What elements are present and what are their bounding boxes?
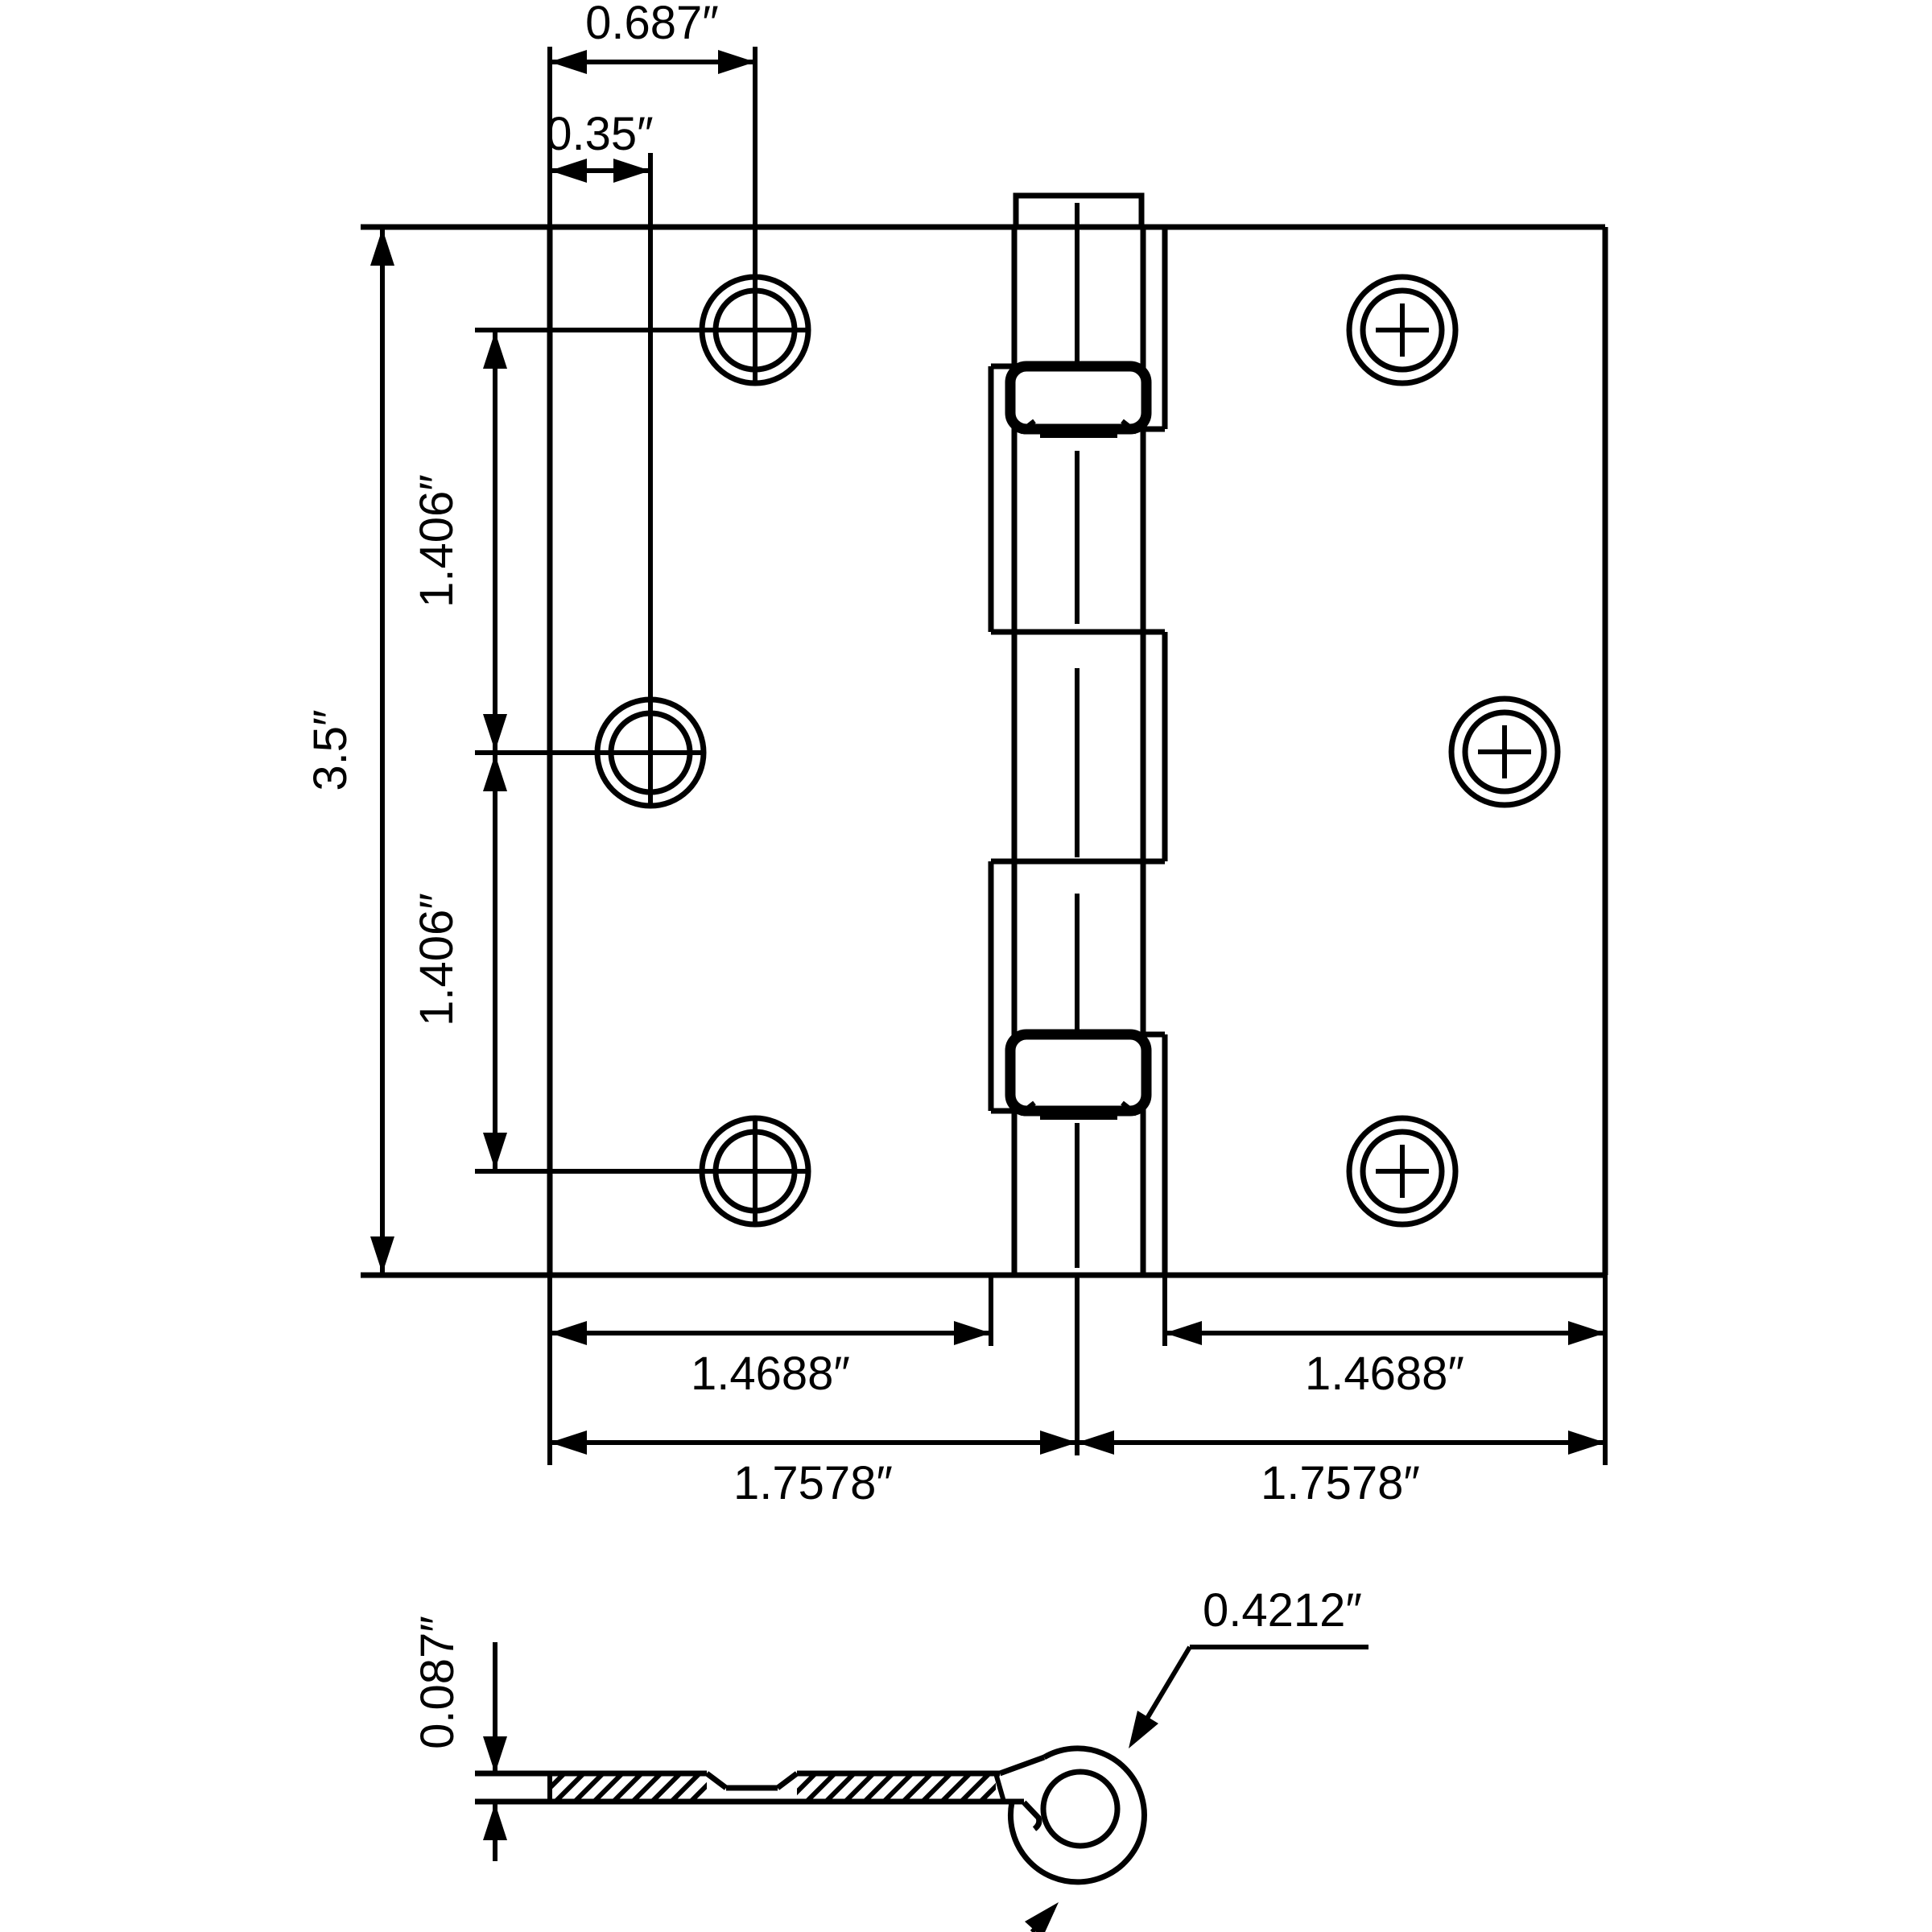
arrowhead-left	[550, 159, 587, 183]
arrowhead-left	[550, 1321, 587, 1345]
arrowhead-top	[483, 332, 507, 369]
dim-label-barrel-diameter: 0.4212″	[1203, 1584, 1362, 1637]
dim-label-hole-spacing-upper: 1.406″	[411, 474, 463, 608]
dim-right-half-width: 1.7578″	[1077, 1430, 1605, 1509]
screw-hole-right-bottom	[1349, 1118, 1455, 1224]
neck-top-line	[1000, 1757, 1044, 1773]
dim-hinge-height: 3.5″	[304, 227, 394, 1275]
leaf-cross-section	[475, 1773, 1024, 1802]
arrowhead-left	[1165, 1321, 1202, 1345]
leader-arrowhead	[1025, 1902, 1059, 1932]
arrowhead-right	[1040, 1430, 1077, 1455]
arrowhead-up	[483, 1803, 507, 1840]
arrowhead-top	[370, 229, 394, 266]
dim-label-right-half-width: 1.7578″	[1261, 1457, 1420, 1509]
leader-arrowhead	[1129, 1711, 1158, 1748]
hole-centerline-extensions	[475, 330, 808, 1171]
dim-left-half-width: 1.7578″	[550, 1430, 1077, 1509]
dim-label-left-half-width: 1.7578″	[733, 1457, 893, 1509]
hatch-region-right	[797, 1776, 996, 1799]
dim-label-height: 3.5″	[304, 709, 357, 791]
dim-label-left-leaf-width: 1.4688″	[691, 1348, 850, 1400]
bearing-top	[1010, 366, 1146, 436]
dim-label-right-leaf-width: 1.4688″	[1305, 1348, 1464, 1400]
curl-end-notch	[1024, 1802, 1039, 1829]
hatch-region-left	[550, 1776, 707, 1799]
arrowhead-bottom	[483, 714, 507, 751]
screw-hole-right-middle	[1451, 699, 1558, 805]
dim-label-middle-hole-offset: 0.35″	[546, 108, 653, 160]
arrowhead-bottom	[370, 1236, 394, 1274]
dim-barrel-diameter: 0.4212″	[1129, 1584, 1368, 1748]
arrowhead-top	[483, 754, 507, 791]
dim-label-hole-spacing-lower: 1.406″	[411, 893, 463, 1026]
loop-outer-arc	[1010, 1748, 1144, 1882]
arrowhead-bottom	[483, 1133, 507, 1170]
arrowhead-right	[954, 1321, 991, 1345]
hinge-barrel	[991, 196, 1165, 1275]
bearing-bottom-body	[1010, 1034, 1146, 1111]
bottom-leader	[1025, 1902, 1059, 1932]
arrowhead-right	[718, 50, 755, 74]
dim-label-top-hole-offset: 0.687″	[585, 0, 719, 49]
loop-inner-circle	[1043, 1772, 1117, 1846]
dim-left-leaf-width: 1.4688″	[550, 1321, 991, 1400]
barrel-loop	[1000, 1748, 1144, 1882]
bearing-top-body	[1010, 366, 1146, 429]
arrowhead-down	[483, 1736, 507, 1773]
hinge-technical-drawing: 0.687″ 0.35″ 3.5″ 1.406″	[0, 0, 1932, 1932]
dim-right-leaf-width: 1.4688″	[1165, 1321, 1605, 1400]
arrowhead-left	[550, 1430, 587, 1455]
arrowhead-right	[613, 159, 650, 183]
dim-hole-spacing-upper: 1.406″	[411, 330, 507, 753]
arrowhead-right	[1568, 1321, 1605, 1345]
arrowhead-right	[1568, 1430, 1605, 1455]
dim-hole-spacing-lower: 1.406″	[411, 753, 507, 1171]
arrowhead-left	[550, 50, 587, 74]
side-view: 0.087″ 0.4212″	[411, 1584, 1368, 1932]
screw-holes-right-leaf	[1349, 277, 1558, 1224]
dim-leaf-thickness: 0.087″	[411, 1616, 507, 1861]
countersink-left-slope	[707, 1773, 726, 1788]
screw-hole-right-top	[1349, 277, 1455, 383]
dim-label-leaf-thickness: 0.087″	[411, 1616, 464, 1749]
countersink-section	[707, 1773, 797, 1788]
hatch-end-edge	[996, 1773, 1004, 1802]
bearing-bottom	[1010, 1034, 1146, 1117]
arrowhead-left	[1077, 1430, 1114, 1455]
front-view: 0.687″ 0.35″ 3.5″ 1.406″	[304, 0, 1605, 1509]
countersink-right-slope	[778, 1773, 797, 1788]
